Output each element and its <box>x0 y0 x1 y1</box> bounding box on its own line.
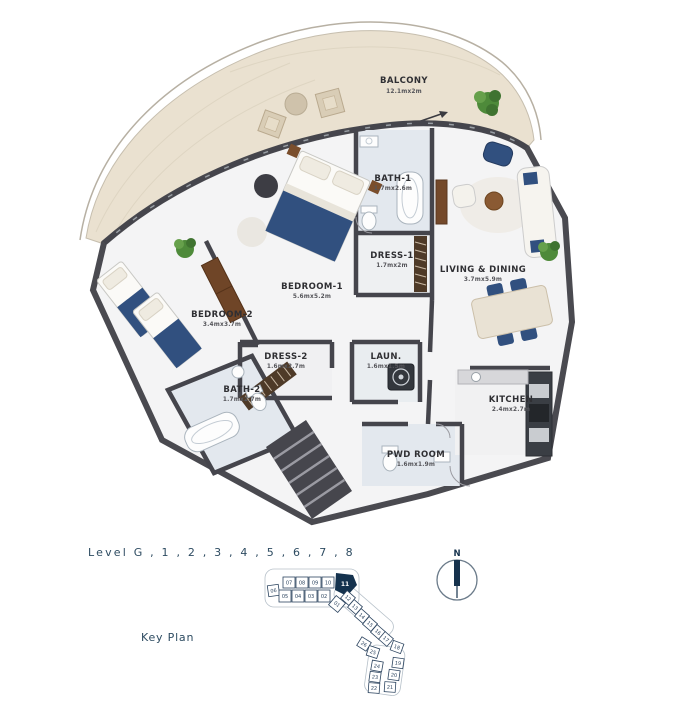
svg-text:11: 11 <box>341 581 349 588</box>
floor-plan-page: BALCONY 12.1mx2m BATH-1 1.7mx2.6m DRESS-… <box>0 0 691 714</box>
level-label: Level G , 1 , 2 , 3 , 4 , 5 , 6 , 7 , 8 <box>88 546 355 559</box>
label-dress1: DRESS-1 <box>370 251 414 261</box>
dress1-wardrobe <box>414 236 427 292</box>
svg-text:06: 06 <box>270 588 277 595</box>
key-plan-label: Key Plan <box>141 631 194 644</box>
key-plan-unit-07: 07 <box>283 577 295 588</box>
dims-balcony: 12.1mx2m <box>386 89 422 95</box>
bedroom1-rug <box>237 217 267 247</box>
dims-bedroom2: 3.4mx3.7m <box>203 322 241 328</box>
dims-kitchen: 2.4mx2.7m <box>492 407 530 413</box>
svg-text:07: 07 <box>286 580 292 586</box>
key-plan-unit-10: 10 <box>322 577 334 588</box>
label-pwd: PWD ROOM <box>387 450 445 460</box>
key-plan-unit-21: 21 <box>384 682 396 693</box>
balcony-rug <box>285 93 307 115</box>
key-plan-unit-22: 22 <box>368 683 380 694</box>
dims-bedroom1: 5.6mx5.2m <box>293 294 331 300</box>
key-plan-unit-04: 04 <box>292 590 304 602</box>
label-bedroom1: BEDROOM-1 <box>281 282 343 292</box>
dims-bath2: 1.7mx2.7m <box>223 397 261 403</box>
dims-dress2: 1.6mx2.7m <box>267 364 305 370</box>
floor-plan-canvas: BALCONY 12.1mx2m BATH-1 1.7mx2.6m DRESS-… <box>0 0 691 714</box>
svg-text:23: 23 <box>371 674 378 681</box>
svg-text:03: 03 <box>308 594 314 600</box>
label-dress2: DRESS-2 <box>264 352 308 362</box>
svg-text:08: 08 <box>299 580 305 586</box>
label-bedroom2: BEDROOM-2 <box>191 310 253 320</box>
key-plan-unit-19: 19 <box>392 657 404 668</box>
dims-pwd: 1.6mx1.9m <box>397 462 435 468</box>
key-plan-unit-20: 20 <box>388 669 400 680</box>
label-kitchen: KITCHEN <box>489 395 534 405</box>
label-bath2: BATH-2 <box>223 385 260 395</box>
svg-text:04: 04 <box>295 594 301 600</box>
key-plan-unit-24: 24 <box>371 660 384 672</box>
svg-text:24: 24 <box>373 663 380 670</box>
key-plan-unit-03: 03 <box>305 590 317 602</box>
key-plan-unit-06: 06 <box>267 584 279 596</box>
svg-text:02: 02 <box>321 594 327 600</box>
key-plan-unit-09: 09 <box>309 577 321 588</box>
key-plan-unit-23: 23 <box>369 671 381 682</box>
svg-text:19: 19 <box>394 660 401 667</box>
living-coffee-table <box>485 192 503 210</box>
label-bath1: BATH-1 <box>374 174 411 184</box>
dims-living: 3.7mx5.9m <box>464 277 502 283</box>
svg-text:21: 21 <box>387 685 394 691</box>
key-plan-unit-18: 18 <box>390 640 404 653</box>
dims-bath1: 1.7mx2.6m <box>374 186 412 192</box>
north-arrow-icon: N <box>437 549 477 600</box>
label-balcony: BALCONY <box>380 76 428 86</box>
living-armchair <box>451 183 476 208</box>
wall <box>430 300 432 352</box>
label-living: LIVING & DINING <box>440 265 526 275</box>
bedroom1-chair <box>254 174 278 198</box>
north-label: N <box>453 549 460 559</box>
key-plan-unit-05: 05 <box>279 590 291 602</box>
dims-laundry: 1.6mx1.5m <box>367 364 405 370</box>
svg-text:05: 05 <box>282 594 288 600</box>
label-laundry: LAUN. <box>371 352 402 362</box>
key-plan-unit-08: 08 <box>296 577 308 588</box>
svg-text:10: 10 <box>325 580 331 586</box>
svg-text:20: 20 <box>390 672 397 679</box>
key-plan-unit-02: 02 <box>318 590 330 602</box>
svg-text:09: 09 <box>312 580 318 586</box>
living-console <box>436 180 447 224</box>
svg-text:22: 22 <box>371 686 378 692</box>
key-plan: 07 08 09 10 11 06 05 04 03 02 01 12 13 1… <box>265 569 406 697</box>
dims-dress1: 1.7mx2m <box>376 263 408 269</box>
wall <box>428 380 430 424</box>
